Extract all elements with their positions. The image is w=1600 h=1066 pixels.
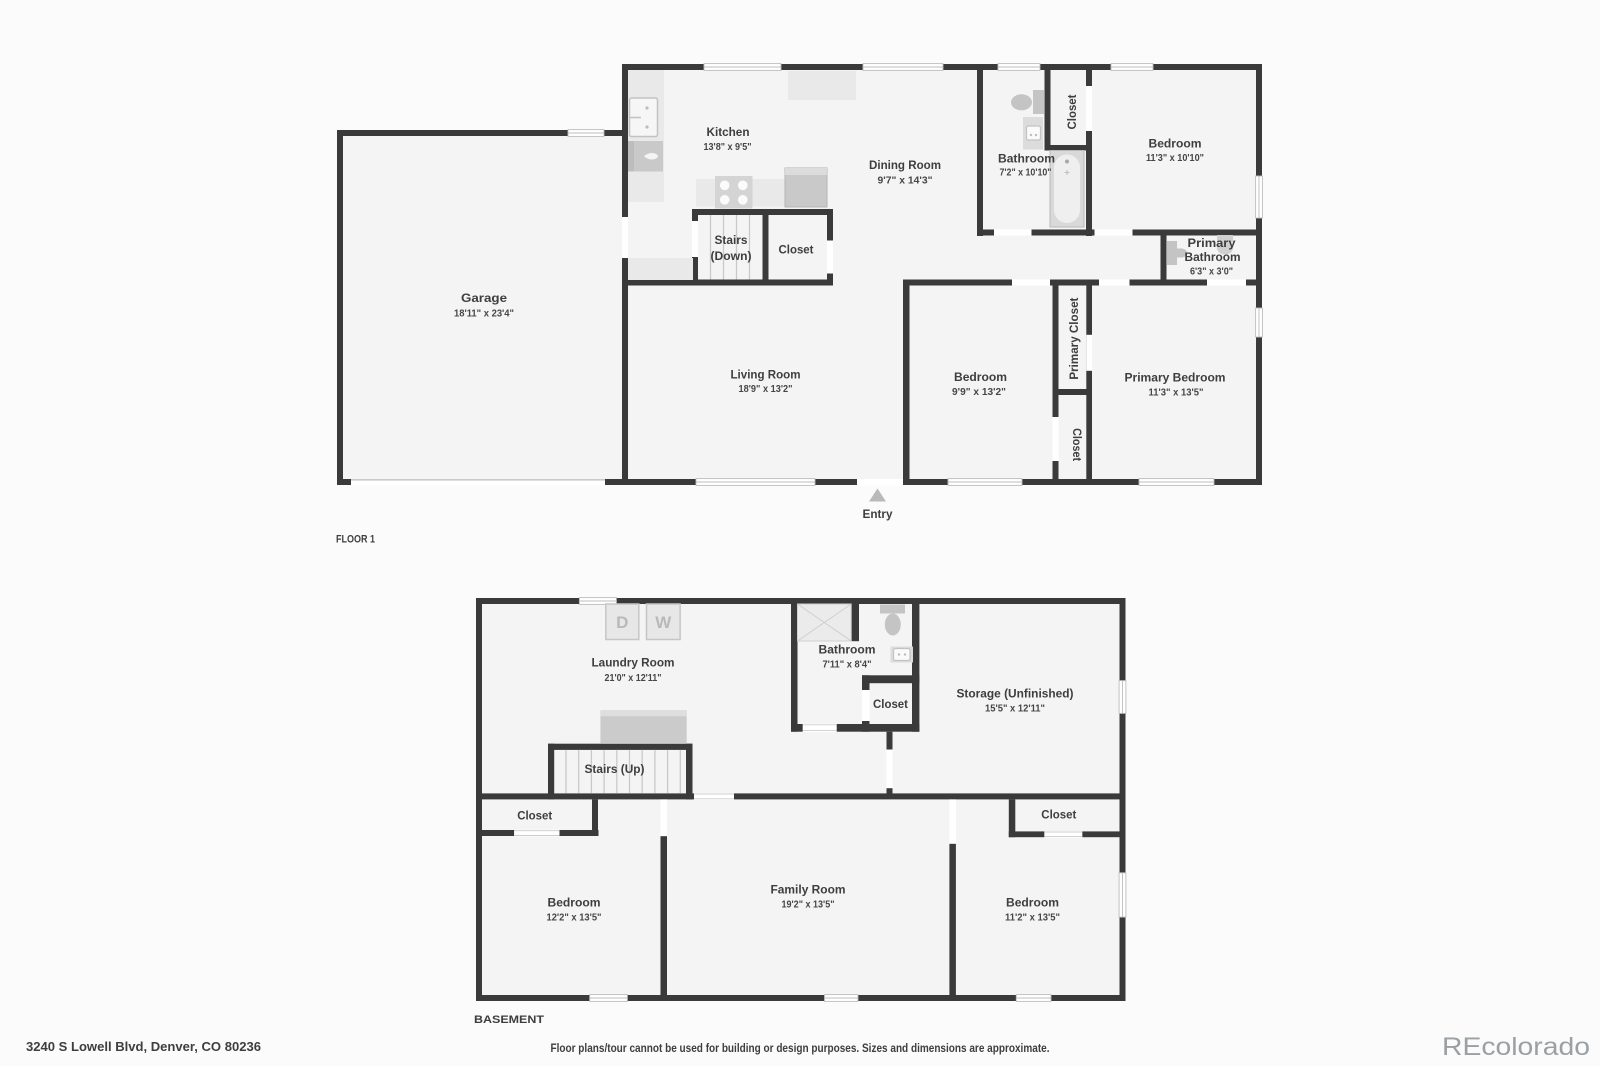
svg-text:Garage: Garage [461,291,507,305]
svg-text:11'3" x 10'10": 11'3" x 10'10" [1146,153,1204,164]
svg-text:7'2" x 10'10": 7'2" x 10'10" [1000,168,1052,179]
svg-text:9'9" x 13'2": 9'9" x 13'2" [952,387,1006,398]
svg-text:W: W [655,613,672,632]
svg-text:21'0" x 12'11": 21'0" x 12'11" [605,673,662,684]
svg-text:Dining Room: Dining Room [869,158,941,172]
svg-text:Bedroom: Bedroom [1149,137,1202,151]
svg-text:Bedroom: Bedroom [1006,896,1059,910]
svg-text:18'9" x 13'2": 18'9" x 13'2" [739,384,793,395]
svg-text:Stairs (Up): Stairs (Up) [585,762,645,776]
svg-text:11'3" x 13'5": 11'3" x 13'5" [1149,388,1204,399]
svg-text:9'7" x 14'3": 9'7" x 14'3" [878,176,933,187]
svg-text:7'11" x 8'4": 7'11" x 8'4" [823,660,872,671]
svg-text:Closet: Closet [517,809,552,823]
svg-text:Primary: Primary [1188,236,1236,250]
svg-text:Entry: Entry [863,507,893,521]
svg-text:(Down): (Down) [711,249,752,263]
svg-text:BASEMENT: BASEMENT [474,1014,544,1026]
svg-text:D: D [616,613,628,632]
svg-text:12'2" x 13'5": 12'2" x 13'5" [547,913,602,924]
svg-text:Closet: Closet [873,697,908,711]
svg-text:Bathroom: Bathroom [819,643,876,657]
svg-text:Storage (Unfinished): Storage (Unfinished) [957,687,1074,701]
svg-text:Floor plans/tour cannot be use: Floor plans/tour cannot be used for buil… [551,1041,1050,1055]
svg-text:REcolorado: REcolorado [1442,1033,1590,1061]
svg-text:6'3" x 3'0": 6'3" x 3'0" [1190,267,1233,278]
svg-text:Closet: Closet [779,243,814,257]
svg-text:Primary Bedroom: Primary Bedroom [1125,371,1226,385]
svg-text:18'11" x 23'4": 18'11" x 23'4" [454,309,514,320]
svg-text:FLOOR 1: FLOOR 1 [336,534,375,546]
svg-text:Bedroom: Bedroom [954,370,1007,384]
svg-text:Bathroom: Bathroom [998,152,1055,166]
svg-text:19'2" x 13'5": 19'2" x 13'5" [782,900,835,911]
svg-text:Family Room: Family Room [771,883,846,897]
svg-text:Closet: Closet [1065,95,1079,130]
svg-text:11'2" x 13'5": 11'2" x 13'5" [1005,913,1060,924]
svg-text:13'8" x 9'5": 13'8" x 9'5" [704,142,752,153]
svg-text:3240 S Lowell Blvd, Denver, CO: 3240 S Lowell Blvd, Denver, CO 80236 [26,1039,261,1054]
svg-text:Kitchen: Kitchen [707,125,750,139]
svg-text:Bathroom: Bathroom [1185,250,1241,264]
svg-text:Living Room: Living Room [731,368,801,382]
svg-text:Laundry Room: Laundry Room [592,656,675,670]
svg-text:Primary Closet: Primary Closet [1067,298,1081,380]
svg-text:Stairs: Stairs [715,233,748,247]
svg-text:Closet: Closet [1041,808,1076,822]
svg-text:15'5" x 12'11": 15'5" x 12'11" [985,704,1045,715]
svg-text:Closet: Closet [1070,428,1084,461]
svg-text:Bedroom: Bedroom [548,896,601,910]
